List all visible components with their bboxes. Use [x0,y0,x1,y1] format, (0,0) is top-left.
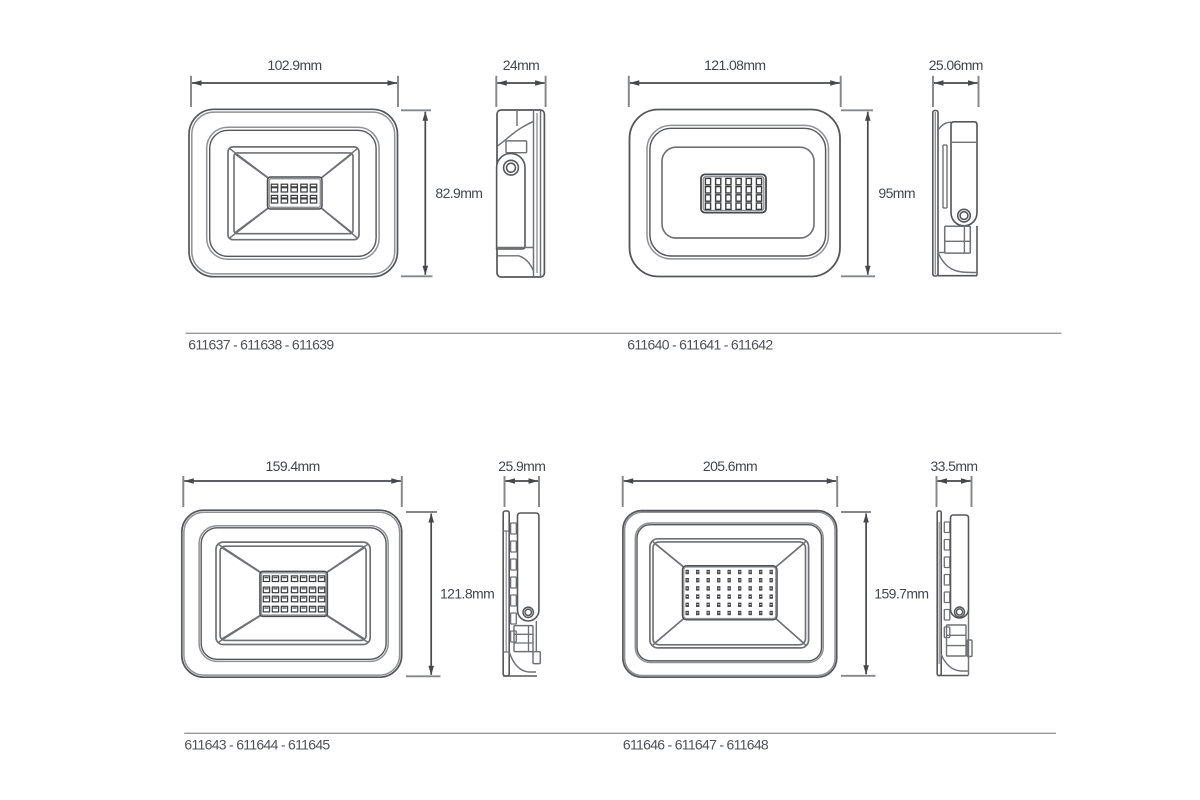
svg-text:611637 - 611638 - 611639: 611637 - 611638 - 611639 [188,337,334,353]
svg-text:611643 - 611644 - 611645: 611643 - 611644 - 611645 [184,736,330,752]
svg-text:25.9mm: 25.9mm [498,458,545,474]
svg-text:102.9mm: 102.9mm [267,57,321,73]
svg-text:159.7mm: 159.7mm [874,586,928,602]
svg-text:24mm: 24mm [503,57,540,73]
svg-text:205.6mm: 205.6mm [703,458,757,474]
svg-text:82.9mm: 82.9mm [435,185,482,201]
svg-text:611646 - 611647 - 611648: 611646 - 611647 - 611648 [623,736,769,752]
svg-text:611640 - 611641 - 611642: 611640 - 611641 - 611642 [627,337,773,353]
svg-text:33.5mm: 33.5mm [931,458,978,474]
svg-text:25.06mm: 25.06mm [929,57,983,73]
svg-text:121.8mm: 121.8mm [440,586,494,602]
svg-text:95mm: 95mm [878,185,915,201]
svg-text:159.4mm: 159.4mm [266,458,320,474]
svg-text:121.08mm: 121.08mm [704,57,765,73]
